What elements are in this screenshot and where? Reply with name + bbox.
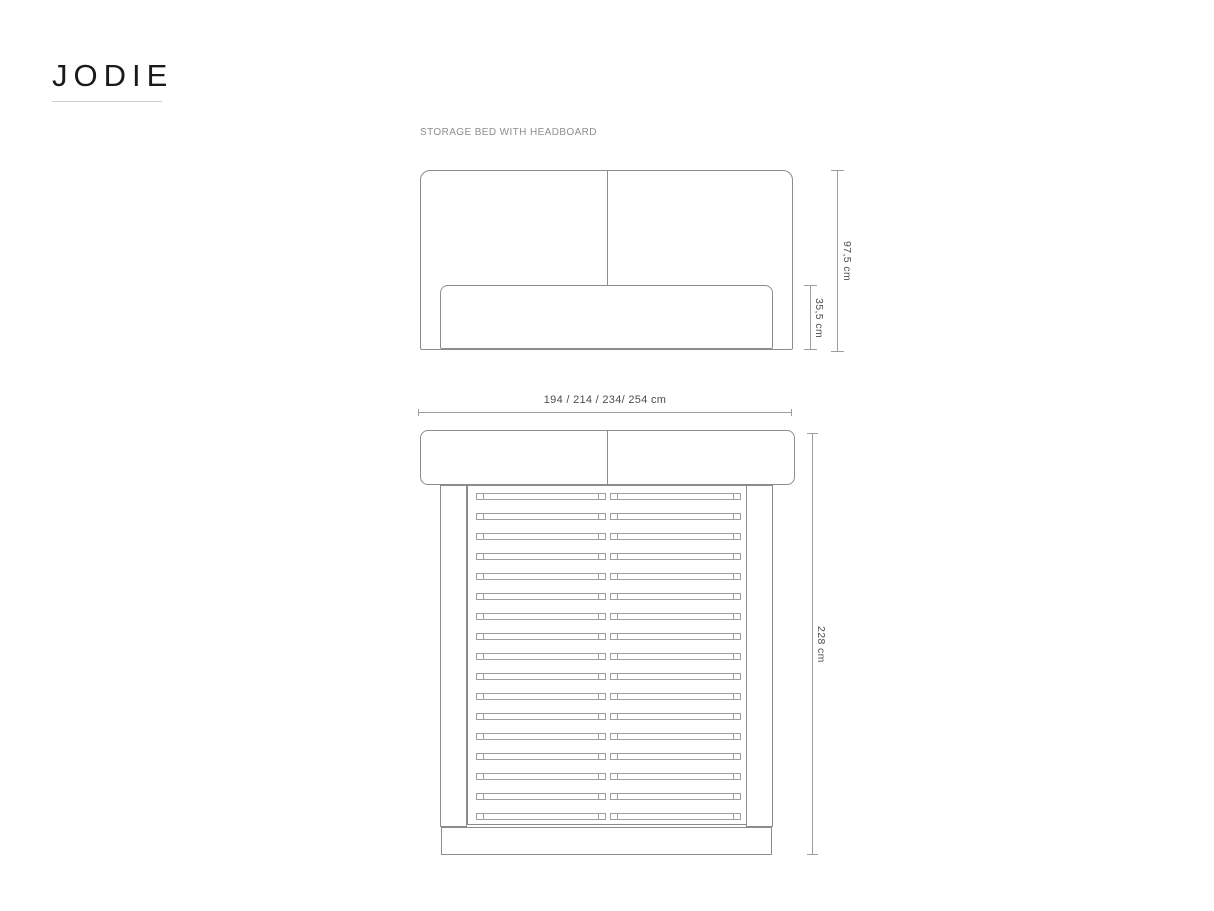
bed-slat bbox=[610, 653, 741, 660]
bed-slat bbox=[476, 613, 606, 620]
brand-underline bbox=[52, 101, 162, 102]
slat-row bbox=[476, 713, 741, 720]
dim-line-vertical bbox=[810, 285, 811, 350]
bed-slat bbox=[476, 653, 606, 660]
bed-slat bbox=[476, 733, 606, 740]
bed-slat bbox=[610, 713, 741, 720]
dim-width-label: 194 / 214 / 234/ 254 cm bbox=[418, 394, 792, 406]
bed-slat bbox=[476, 673, 606, 680]
bed-slat bbox=[476, 793, 606, 800]
slat-row bbox=[476, 653, 741, 660]
bed-slat bbox=[610, 593, 741, 600]
bed-slat bbox=[610, 793, 741, 800]
bed-slat bbox=[610, 573, 741, 580]
bed-slat bbox=[476, 773, 606, 780]
dim-line-vertical bbox=[837, 170, 838, 352]
bed-slat bbox=[476, 633, 606, 640]
top-side-rail-right bbox=[746, 485, 773, 827]
bed-slat bbox=[610, 753, 741, 760]
slat-row bbox=[476, 493, 741, 500]
bed-slat bbox=[610, 633, 741, 640]
bed-slat bbox=[476, 713, 606, 720]
bed-slat bbox=[476, 693, 606, 700]
top-footboard bbox=[441, 827, 772, 855]
dim-front-total-height-label: 97,5 cm bbox=[840, 170, 854, 352]
slat-row bbox=[476, 533, 741, 540]
bed-slat bbox=[610, 733, 741, 740]
dim-line-vertical bbox=[812, 433, 813, 855]
slat-row bbox=[476, 513, 741, 520]
bed-slat bbox=[476, 593, 606, 600]
bed-slat bbox=[476, 753, 606, 760]
slat-row bbox=[476, 673, 741, 680]
bed-slat bbox=[476, 513, 606, 520]
slat-row bbox=[476, 693, 741, 700]
slat-row bbox=[476, 633, 741, 640]
bed-slat bbox=[476, 553, 606, 560]
bed-slat bbox=[610, 673, 741, 680]
top-headboard-split-line bbox=[607, 431, 608, 484]
bed-slat bbox=[476, 493, 606, 500]
bed-slat bbox=[476, 533, 606, 540]
slat-row bbox=[476, 733, 741, 740]
slat-row bbox=[476, 793, 741, 800]
brand-logo: JODIE bbox=[52, 58, 173, 94]
bed-slat bbox=[610, 613, 741, 620]
slat-row bbox=[476, 753, 741, 760]
dim-tick bbox=[418, 409, 419, 416]
bed-slat bbox=[610, 693, 741, 700]
bed-slat bbox=[610, 533, 741, 540]
dim-length-label: 228 cm bbox=[814, 433, 828, 855]
front-bed-base bbox=[440, 285, 773, 349]
dim-front-base-height-label: 35,5 cm bbox=[812, 285, 826, 351]
bed-slat bbox=[610, 493, 741, 500]
spec-sheet: JODIE STORAGE BED WITH HEADBOARD 97,5 cm… bbox=[0, 0, 1214, 911]
slat-row bbox=[476, 613, 741, 620]
top-side-rail-left bbox=[440, 485, 467, 827]
slat-row bbox=[476, 813, 741, 820]
bed-slat bbox=[610, 513, 741, 520]
slat-row bbox=[476, 773, 741, 780]
bed-slat bbox=[610, 813, 741, 820]
front-headboard-split-line bbox=[607, 171, 608, 285]
dim-line-horizontal bbox=[418, 412, 792, 413]
bed-slat bbox=[476, 813, 606, 820]
bed-slat bbox=[476, 573, 606, 580]
slat-area bbox=[467, 485, 747, 825]
slat-row bbox=[476, 593, 741, 600]
product-label: STORAGE BED WITH HEADBOARD bbox=[420, 127, 597, 138]
dim-tick bbox=[791, 409, 792, 416]
bed-slat bbox=[610, 773, 741, 780]
slat-row bbox=[476, 573, 741, 580]
bed-slat bbox=[610, 553, 741, 560]
slat-row bbox=[476, 553, 741, 560]
